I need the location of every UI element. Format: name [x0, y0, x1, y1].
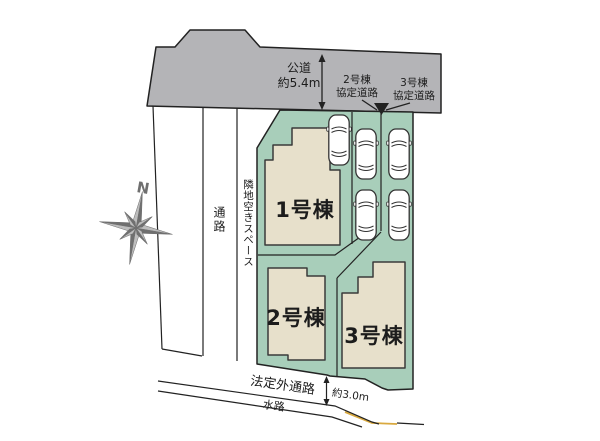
public-road-name: 公道	[269, 61, 329, 76]
agreement-road-2-label: 2号棟 協定道路	[329, 74, 385, 99]
car-icon	[387, 129, 412, 179]
passage-label: 通路	[211, 206, 228, 234]
agreement-road-3-line2: 協定道路	[386, 90, 442, 103]
building-3-label: 3号棟	[336, 320, 412, 350]
adjacent-space-label: 隣地空きスペース	[241, 179, 256, 267]
agreement-road-2-line2: 協定道路	[329, 87, 385, 100]
building-2-label: 2号棟	[258, 302, 334, 332]
building-1-label: 1号棟	[267, 194, 343, 224]
agreement-road-2-line1: 2号棟	[329, 74, 385, 87]
car-icon	[327, 115, 352, 165]
public-road-width: 約5.4m	[269, 76, 329, 91]
compass-icon	[93, 185, 179, 271]
compass-north-label: N	[133, 178, 154, 199]
public-road-label: 公道 約5.4m	[269, 61, 329, 91]
site-plan-canvas: 公道 約5.4m 2号棟 協定道路 3号棟 協定道路 1号棟 2号棟 3号棟 通…	[0, 0, 600, 441]
car-icon	[354, 190, 379, 240]
agreement-road-3-label: 3号棟 協定道路	[386, 77, 442, 102]
passage-width-arrow	[324, 376, 330, 406]
car-icon	[387, 190, 412, 240]
agreement-road-3-line1: 3号棟	[386, 77, 442, 90]
waterway-label: 水路	[262, 396, 286, 415]
car-icon	[354, 129, 379, 179]
